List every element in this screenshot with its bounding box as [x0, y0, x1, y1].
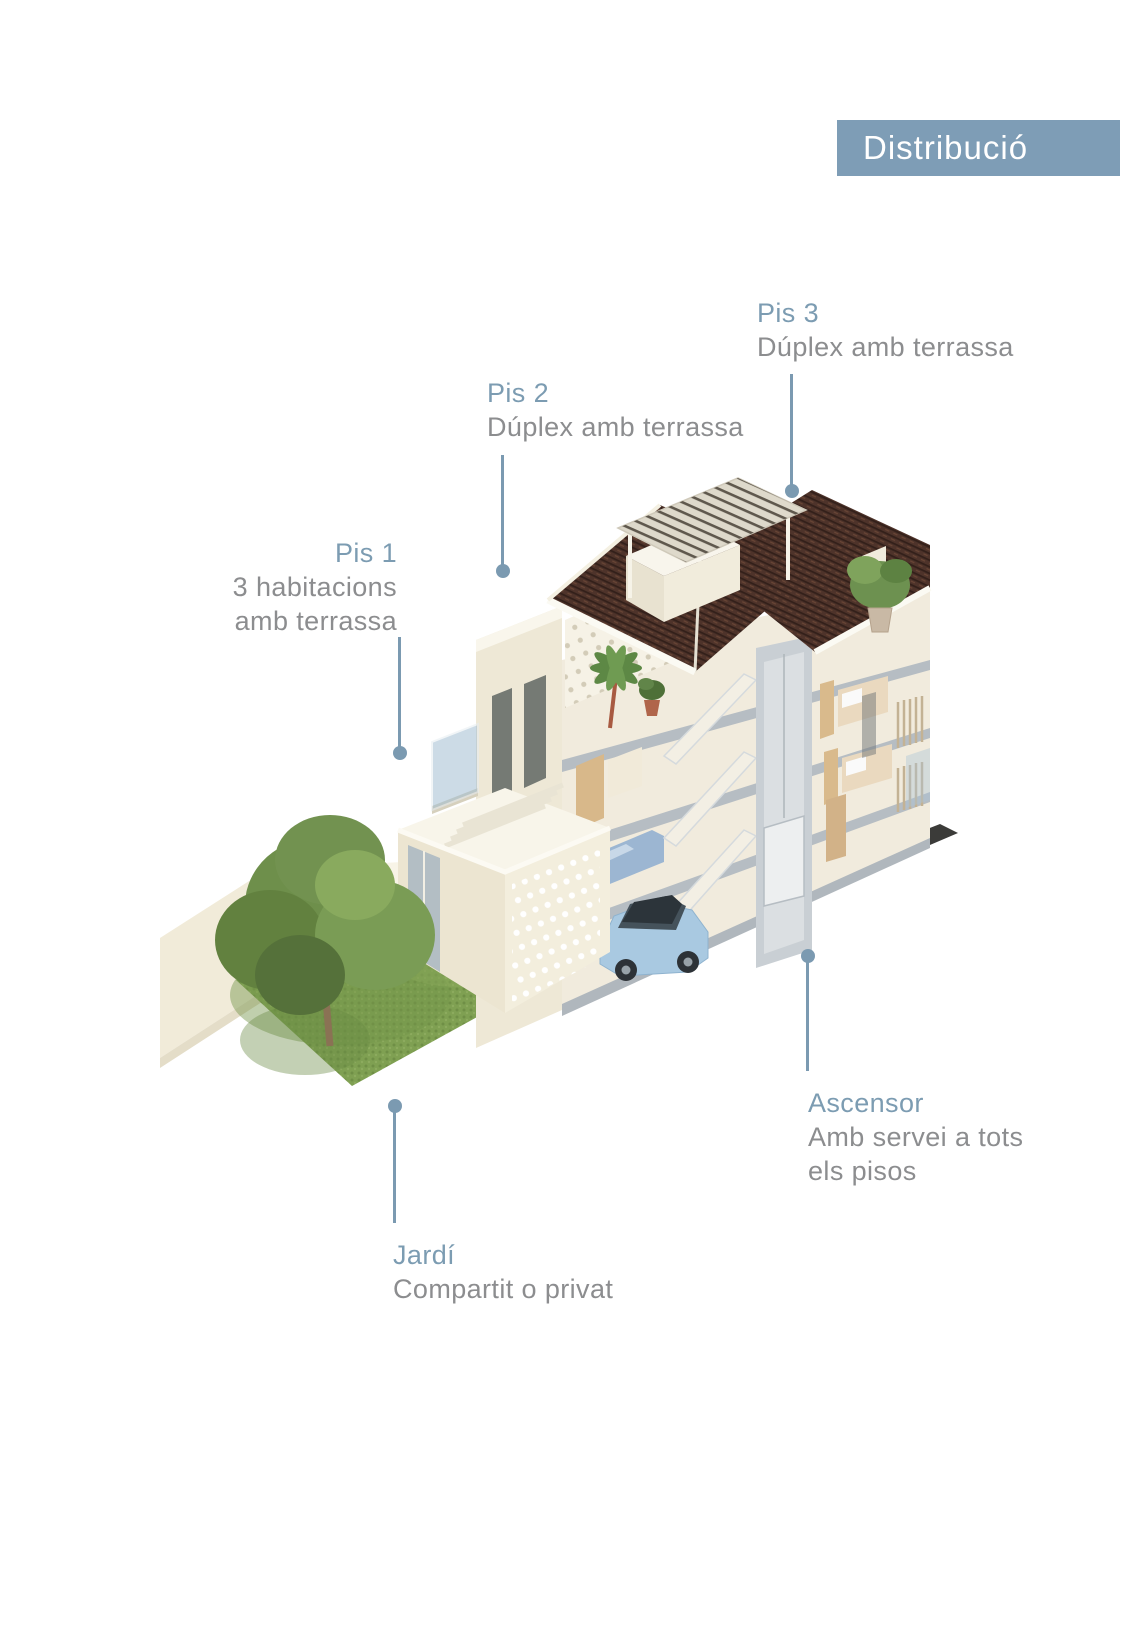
annotation-jardi: Jardí Compartit o privat — [393, 1238, 613, 1306]
annotation-title: Pis 3 — [757, 296, 1014, 330]
brochure-page: Distribució Pis 3 Dúplex amb terrassa Pi… — [0, 0, 1125, 1625]
potted-plant — [847, 556, 912, 632]
annotation-title: Pis 2 — [487, 376, 744, 410]
leader-line-pis2 — [501, 455, 504, 567]
building-facade — [432, 606, 562, 1048]
section-title-banner: Distribució — [837, 120, 1120, 176]
page-title: Distribució — [863, 129, 1028, 166]
annotation-text: Compartit o privat — [393, 1272, 613, 1306]
annotation-pis1: Pis 1 3 habitacions amb terrassa — [233, 536, 397, 638]
garden-walls — [160, 862, 402, 1068]
annotation-text: amb terrassa — [233, 604, 397, 638]
annotation-text: Amb servei a tots — [808, 1120, 1023, 1154]
garden-tree — [215, 815, 435, 1046]
leader-dot-pis1 — [393, 746, 407, 760]
leader-dot-pis3 — [785, 484, 799, 498]
leader-line-ascensor — [806, 961, 809, 1071]
annotation-text: Dúplex amb terrassa — [487, 410, 744, 444]
ground-shadow — [858, 824, 958, 868]
leader-line-pis3 — [790, 374, 793, 486]
annotation-title: Ascensor — [808, 1086, 1023, 1120]
annotation-pis2: Pis 2 Dúplex amb terrassa — [487, 376, 744, 444]
roof — [548, 490, 930, 672]
annotation-ascensor: Ascensor Amb servei a tots els pisos — [808, 1086, 1023, 1188]
rooftop-pergola — [618, 478, 806, 622]
annotation-title: Pis 1 — [233, 536, 397, 570]
building-section — [562, 580, 930, 1016]
garden-grass — [230, 900, 566, 1086]
annotation-text: els pisos — [808, 1154, 1023, 1188]
terrace-structure — [398, 785, 610, 1013]
staircase — [664, 674, 756, 926]
building-cutaway-illustration — [0, 0, 1125, 1625]
slatted-shutters — [898, 696, 922, 812]
leader-line-pis1 — [398, 637, 401, 749]
palm-plant — [590, 643, 665, 728]
leader-line-jardi — [393, 1111, 396, 1223]
lattice-wall — [565, 562, 700, 708]
leader-dot-pis2 — [496, 564, 510, 578]
annotation-title: Jardí — [393, 1238, 613, 1272]
car — [600, 895, 708, 981]
elevator-shaft — [756, 636, 812, 968]
sofa — [590, 830, 664, 888]
annotation-pis3: Pis 3 Dúplex amb terrassa — [757, 296, 1014, 364]
annotation-text: 3 habitacions — [233, 570, 397, 604]
annotation-text: Dúplex amb terrassa — [757, 330, 1014, 364]
